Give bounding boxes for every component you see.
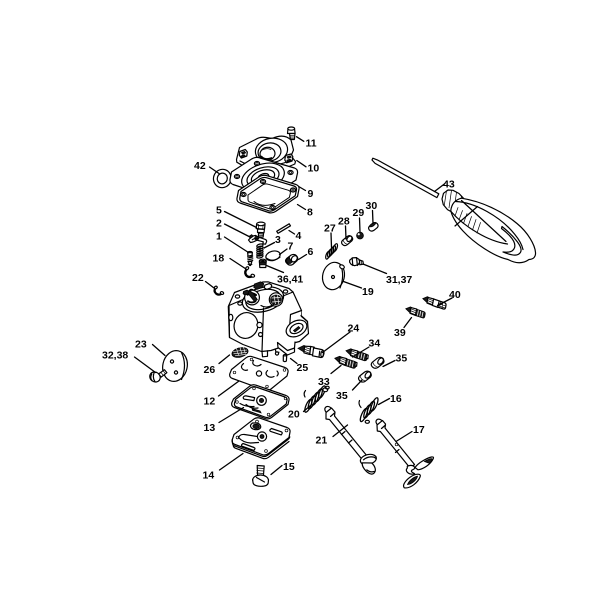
svg-text:6: 6 — [308, 246, 314, 258]
svg-text:18: 18 — [213, 253, 225, 265]
svg-text:3: 3 — [275, 234, 281, 246]
svg-text:27: 27 — [324, 223, 336, 235]
svg-text:9: 9 — [308, 188, 314, 200]
svg-text:20: 20 — [288, 409, 300, 421]
svg-text:17: 17 — [413, 424, 425, 436]
svg-text:11: 11 — [306, 138, 317, 150]
svg-text:26: 26 — [204, 364, 216, 376]
svg-text:40: 40 — [449, 289, 461, 301]
svg-text:5: 5 — [216, 205, 222, 217]
svg-text:15: 15 — [283, 461, 295, 473]
svg-text:43: 43 — [443, 179, 455, 191]
svg-text:30: 30 — [366, 200, 378, 212]
svg-text:2: 2 — [216, 218, 222, 230]
svg-text:42: 42 — [194, 160, 206, 172]
svg-text:39: 39 — [394, 327, 406, 339]
svg-text:4: 4 — [296, 230, 302, 242]
svg-text:34: 34 — [369, 338, 381, 350]
svg-text:16: 16 — [390, 393, 402, 405]
svg-text:13: 13 — [204, 422, 216, 434]
svg-text:28: 28 — [338, 216, 350, 228]
svg-text:19: 19 — [362, 286, 374, 298]
svg-text:7: 7 — [288, 241, 294, 253]
svg-text:12: 12 — [204, 396, 216, 408]
svg-text:21: 21 — [316, 435, 328, 447]
svg-text:22: 22 — [192, 272, 204, 284]
svg-text:10: 10 — [308, 163, 320, 175]
svg-text:1: 1 — [216, 231, 222, 243]
svg-text:25: 25 — [297, 362, 309, 374]
svg-text:36,41: 36,41 — [277, 274, 303, 286]
svg-text:8: 8 — [307, 207, 313, 219]
svg-text:24: 24 — [348, 323, 360, 335]
svg-text:35: 35 — [396, 353, 408, 365]
svg-text:23: 23 — [135, 339, 147, 351]
svg-text:31,37: 31,37 — [386, 274, 412, 286]
svg-text:32,38: 32,38 — [102, 350, 128, 362]
svg-text:35: 35 — [336, 390, 348, 402]
svg-text:14: 14 — [203, 470, 215, 482]
svg-text:29: 29 — [353, 207, 365, 219]
